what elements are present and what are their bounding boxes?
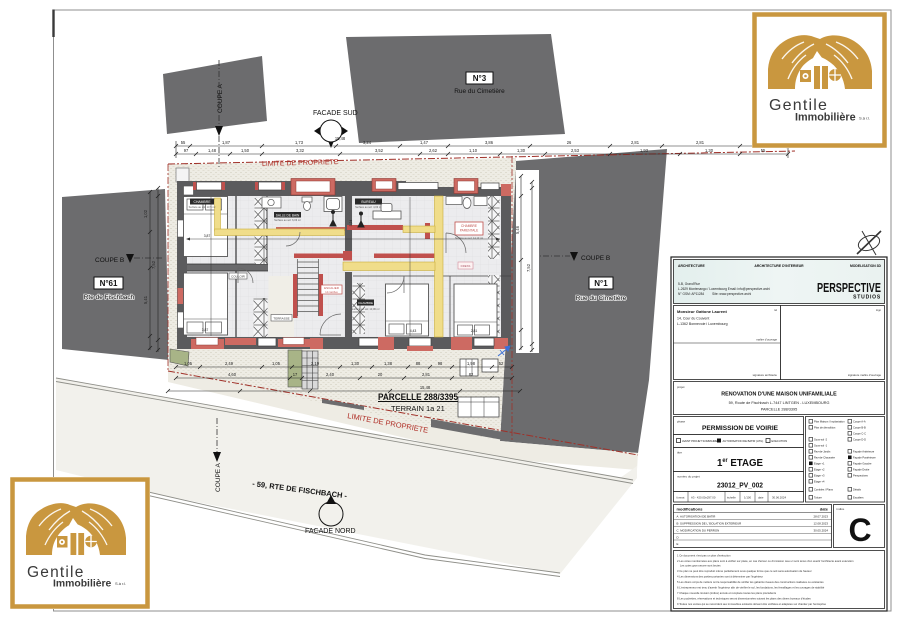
svg-text:COUPE B: COUPE B xyxy=(95,257,124,264)
svg-text:Etage +3: Etage +3 xyxy=(814,474,825,478)
svg-text:59, Route de Fischbach L-7447: 59, Route de Fischbach L-7447 LINTGEN - … xyxy=(729,401,830,405)
svg-text:Rez-de-Chaussée: Rez-de-Chaussée xyxy=(814,456,835,460)
svg-text:3,32: 3,32 xyxy=(296,148,305,153)
svg-text:1,05: 1,05 xyxy=(184,361,193,366)
svg-text:26: 26 xyxy=(567,140,572,145)
svg-text:1,10: 1,10 xyxy=(469,148,478,153)
svg-text:82: 82 xyxy=(469,372,474,377)
svg-text:TERRASSE: TERRASSE xyxy=(273,316,289,320)
svg-text:Rue du Cimetière: Rue du Cimetière xyxy=(454,88,505,95)
svg-text:E: E xyxy=(677,542,679,546)
svg-text:BUREAU: BUREAU xyxy=(361,200,376,204)
svg-text:Coupe A-A: Coupe A-A xyxy=(853,420,866,424)
svg-text:TERRAIN 1a 21: TERRAIN 1a 21 xyxy=(391,404,445,413)
svg-text:CHAMBRE: CHAMBRE xyxy=(194,200,212,204)
svg-text:2,19: 2,19 xyxy=(311,361,320,366)
svg-text:COUPE B: COUPE B xyxy=(581,255,610,262)
svg-text:titre: titre xyxy=(677,451,682,455)
svg-text:2,62: 2,62 xyxy=(429,148,438,153)
svg-text:logo: logo xyxy=(876,308,881,312)
svg-text:55: 55 xyxy=(761,148,766,153)
svg-text:5,46: 5,46 xyxy=(515,225,520,234)
svg-text:format: format xyxy=(677,496,685,500)
svg-text:Coupe C-C: Coupe C-C xyxy=(853,432,866,436)
svg-text:1,30: 1,30 xyxy=(351,361,360,366)
svg-text:30.05.2024: 30.05.2024 xyxy=(814,529,829,533)
svg-text:88: 88 xyxy=(416,361,421,366)
svg-text:N°1: N°1 xyxy=(594,279,608,288)
svg-text:2,40: 2,40 xyxy=(326,372,335,377)
svg-text:7 Chaque nouvelle révision (in: 7 Chaque nouvelle révision (indice) annu… xyxy=(677,591,777,595)
svg-text:1,38: 1,38 xyxy=(384,361,393,366)
svg-text:PARCELLE 288/3395: PARCELLE 288/3395 xyxy=(761,408,797,412)
svg-text:N° GSM: AP11284 Site:: N° GSM: AP11284 Site: www.perspective.ar… xyxy=(678,292,751,296)
svg-text:Escaliers: Escaliers xyxy=(853,496,864,500)
svg-text:N°61: N°61 xyxy=(100,279,118,288)
svg-text:17: 17 xyxy=(293,372,298,377)
svg-text:modifications: modifications xyxy=(677,507,704,512)
svg-text:Perspectives: Perspectives xyxy=(853,474,869,478)
svg-text:D: D xyxy=(677,536,679,540)
svg-text:52: 52 xyxy=(499,361,504,366)
svg-text:date: date xyxy=(820,507,829,512)
svg-text:signature architecte: signature architecte xyxy=(753,373,778,377)
svg-text:Surface au sol: 4,03 m²: Surface au sol: 4,03 m² xyxy=(355,205,382,209)
svg-text:CHAMBRE: CHAMBRE xyxy=(461,224,477,228)
svg-text:1,47: 1,47 xyxy=(420,140,429,145)
svg-text:2,81: 2,81 xyxy=(471,329,478,333)
svg-text:tel: tel xyxy=(774,308,777,312)
svg-text:55: 55 xyxy=(181,140,186,145)
svg-text:COUPE A: COUPE A xyxy=(215,462,222,492)
svg-text:Plan Maison / Implantation: Plan Maison / Implantation xyxy=(814,420,845,424)
svg-text:7,52: 7,52 xyxy=(151,260,156,269)
svg-text:97: 97 xyxy=(184,148,189,153)
svg-text:3,24: 3,24 xyxy=(363,140,372,145)
svg-text:Sous-sol -2: Sous-sol -2 xyxy=(814,438,828,442)
svg-text:5 Les divers corps de métiers: 5 Les divers corps de métiers ont la res… xyxy=(677,580,824,584)
svg-text:5-B, Grand'Rue: 5-B, Grand'Rue xyxy=(678,282,700,286)
svg-text:C: C xyxy=(848,512,871,548)
svg-text:14 marches: 14 marches xyxy=(325,291,338,294)
svg-text:maître d'ouvrage: maître d'ouvrage xyxy=(756,338,777,342)
svg-text:7,52: 7,52 xyxy=(526,263,531,272)
svg-text:SALLE DE BAIN: SALLE DE BAIN xyxy=(276,213,300,217)
svg-text:CHAMBRE: CHAMBRE xyxy=(358,301,373,305)
svg-text:S.à r.l.: S.à r.l. xyxy=(115,581,126,586)
svg-text:1,98: 1,98 xyxy=(467,361,476,366)
svg-text:98: 98 xyxy=(438,361,443,366)
svg-text:Immobilière: Immobilière xyxy=(53,579,112,590)
svg-text:1,73: 1,73 xyxy=(295,140,304,145)
svg-text:3,86: 3,86 xyxy=(485,140,494,145)
svg-text:L-2629 Montenango / Luxembourg: L-2629 Montenango / Luxembourg Email: in… xyxy=(678,287,770,291)
svg-text:PERSPECTIVE: PERSPECTIVE xyxy=(817,281,881,295)
svg-text:STUDIOS: STUDIOS xyxy=(853,295,881,301)
svg-text:A3 - 420.00x297.00: A3 - 420.00x297.00 xyxy=(691,496,716,500)
svg-text:RENOVATION D'UNE MAISON UNIFAM: RENOVATION D'UNE MAISON UNIFAMILIALE xyxy=(721,392,837,398)
svg-text:EXECUTION: EXECUTION xyxy=(772,439,788,443)
svg-text:2,53: 2,53 xyxy=(571,148,580,153)
svg-text:4,43: 4,43 xyxy=(410,329,417,333)
svg-text:1,87: 1,87 xyxy=(222,140,231,145)
svg-text:Surface au sol: 13,06 m²: Surface au sol: 13,06 m² xyxy=(351,307,379,311)
svg-text:5,41: 5,41 xyxy=(143,295,148,304)
svg-text:2,81: 2,81 xyxy=(696,140,705,145)
svg-text:4,60: 4,60 xyxy=(228,372,237,377)
svg-text:4 Les dimensions des parties p: 4 Les dimensions des parties portantes s… xyxy=(677,575,763,579)
svg-text:Rue du Cimetière: Rue du Cimetière xyxy=(576,295,627,302)
svg-text:Façade Droite: Façade Droite xyxy=(853,468,870,472)
svg-text:Monsieur Gattone Laurent: Monsieur Gattone Laurent xyxy=(677,309,727,314)
svg-text:L-1362 Bonnevoie i Luxembourg: L-1362 Bonnevoie i Luxembourg xyxy=(677,322,728,326)
svg-text:phase: phase xyxy=(677,420,686,424)
svg-text:indice: indice xyxy=(837,507,845,511)
svg-text:12.08.2023: 12.08.2023 xyxy=(814,522,829,526)
svg-text:23012_PV_002: 23012_PV_002 xyxy=(717,481,763,490)
svg-text:Immobilière: Immobilière xyxy=(795,112,856,124)
svg-text:PARCELLE 288/3395: PARCELLE 288/3395 xyxy=(378,392,458,402)
svg-text:AVANT PROJET SOMMAIRE: AVANT PROJET SOMMAIRE xyxy=(682,439,717,443)
svg-text:3,24: 3,24 xyxy=(349,220,353,227)
svg-text:Façade Antérieure: Façade Antérieure xyxy=(853,450,875,454)
svg-text:28.07.2023: 28.07.2023 xyxy=(814,515,829,519)
svg-text:Surface au sol: 6,03 m²: Surface au sol: 6,03 m² xyxy=(274,218,301,222)
svg-text:échelle: échelle xyxy=(727,496,736,500)
svg-text:Détails: Détails xyxy=(853,488,862,492)
svg-text:B SUPPRESSION DE L'ISOLATION: B SUPPRESSION DE L'ISOLATION EXTERIEUR xyxy=(677,522,742,526)
svg-text:Sous-sol -1: Sous-sol -1 xyxy=(814,444,828,448)
svg-text:COULOIR: COULOIR xyxy=(231,275,246,279)
svg-text:Façade Postérieure: Façade Postérieure xyxy=(853,456,876,460)
svg-text:S.à r.l.: S.à r.l. xyxy=(859,116,870,121)
svg-text:6 L'entrepreneur est tenu d'av: 6 L'entrepreneur est tenu d'avertir l'in… xyxy=(677,586,825,590)
svg-text:8 Les pochettes, réservations: 8 Les pochettes, réservations et techniq… xyxy=(677,597,811,601)
svg-text:20: 20 xyxy=(378,372,383,377)
svg-text:1,93: 1,93 xyxy=(640,148,649,153)
svg-text:COUPE A: COUPE A xyxy=(217,83,224,113)
svg-text:Toiture: Toiture xyxy=(814,496,822,500)
svg-text:Combles / Plans: Combles / Plans xyxy=(814,488,834,492)
svg-text:1,30: 1,30 xyxy=(705,148,714,153)
svg-text:Etage +2: Etage +2 xyxy=(814,468,825,472)
svg-text:Plan de démolition: Plan de démolition xyxy=(814,426,836,430)
svg-text:Coupe B-B: Coupe B-B xyxy=(853,426,866,430)
svg-text:15,48: 15,48 xyxy=(335,136,346,141)
svg-text:FACADE SUD: FACADE SUD xyxy=(313,110,358,117)
svg-text:Etage +1: Etage +1 xyxy=(814,462,825,466)
svg-text:1,48: 1,48 xyxy=(208,148,217,153)
svg-text:3,87: 3,87 xyxy=(204,234,211,238)
svg-text:1,05: 1,05 xyxy=(272,361,281,366)
svg-text:A AUTORISATION DE BATIR: A AUTORISATION DE BATIR xyxy=(677,515,716,519)
svg-text:N°3: N°3 xyxy=(473,74,487,83)
svg-text:Façade Gauche: Façade Gauche xyxy=(853,462,872,466)
svg-text:PARENTALE: PARENTALE xyxy=(460,229,478,233)
svg-text:1 Ce document n'est pas un pla: 1 Ce document n'est pas un plan d'exécut… xyxy=(677,554,731,558)
svg-text:Etage +4: Etage +4 xyxy=(814,480,825,484)
svg-text:2,81: 2,81 xyxy=(422,372,431,377)
svg-text:15,48: 15,48 xyxy=(420,385,431,390)
svg-text:projet: projet xyxy=(677,385,685,389)
svg-text:signature maître d'ouvrage: signature maître d'ouvrage xyxy=(848,373,882,377)
svg-text:numéro du projet: numéro du projet xyxy=(677,475,700,479)
svg-text:1,30: 1,30 xyxy=(517,148,526,153)
svg-text:Surface au sol: 13,5 m²: Surface au sol: 13,5 m² xyxy=(189,205,216,209)
svg-text:30.06.2024: 30.06.2024 xyxy=(772,496,786,500)
svg-text:date: date xyxy=(758,496,764,500)
svg-text:Rez-de-Jardin: Rez-de-Jardin xyxy=(814,450,831,454)
svg-text:2 Les cotes mentionnées aux pl: 2 Les cotes mentionnées aux plans sont à… xyxy=(677,559,854,563)
svg-text:3,87: 3,87 xyxy=(202,328,209,332)
svg-text:1/100: 1/100 xyxy=(744,496,751,500)
svg-text:AUTORISATION DE BATIR (ATG): AUTORISATION DE BATIR (ATG) xyxy=(723,439,764,443)
svg-text:14, Cour du Couvent: 14, Cour du Couvent xyxy=(677,317,709,321)
svg-text:Rte de Fischbach: Rte de Fischbach xyxy=(84,294,135,301)
svg-text:MODELISATION 3D: MODELISATION 3D xyxy=(850,264,882,268)
svg-text:1,02: 1,02 xyxy=(143,209,148,218)
svg-text:ARCHITECTURE: ARCHITECTURE xyxy=(678,264,705,268)
svg-text:1,50: 1,50 xyxy=(241,148,250,153)
svg-text:ESCALIER: ESCALIER xyxy=(324,286,340,290)
svg-text:3,52: 3,52 xyxy=(375,148,384,153)
svg-text:Les cotes gros-oeuvre sont bru: Les cotes gros-oeuvre sont brutes xyxy=(680,564,721,568)
svg-text:9 Toutes nos ventes qui se rac: 9 Toutes nos ventes qui se raccordent au… xyxy=(677,602,826,606)
svg-text:2,81: 2,81 xyxy=(631,140,640,145)
svg-text:Coupe D-D: Coupe D-D xyxy=(853,438,866,442)
svg-text:3 Ce plan ne peut être reprodu: 3 Ce plan ne peut être reproduit même pa… xyxy=(677,569,812,573)
svg-text:ARCHITECTURE D'INTERIEUR: ARCHITECTURE D'INTERIEUR xyxy=(754,264,804,268)
svg-text:PERMISSION DE VOIRIE: PERMISSION DE VOIRIE xyxy=(702,425,779,432)
svg-text:C MODIFICATION DU PERRON: C MODIFICATION DU PERRON xyxy=(677,529,720,533)
svg-text:DRESS: DRESS xyxy=(461,264,471,268)
svg-text:2,49: 2,49 xyxy=(225,361,234,366)
svg-text:FACADE NORD: FACADE NORD xyxy=(305,528,356,535)
